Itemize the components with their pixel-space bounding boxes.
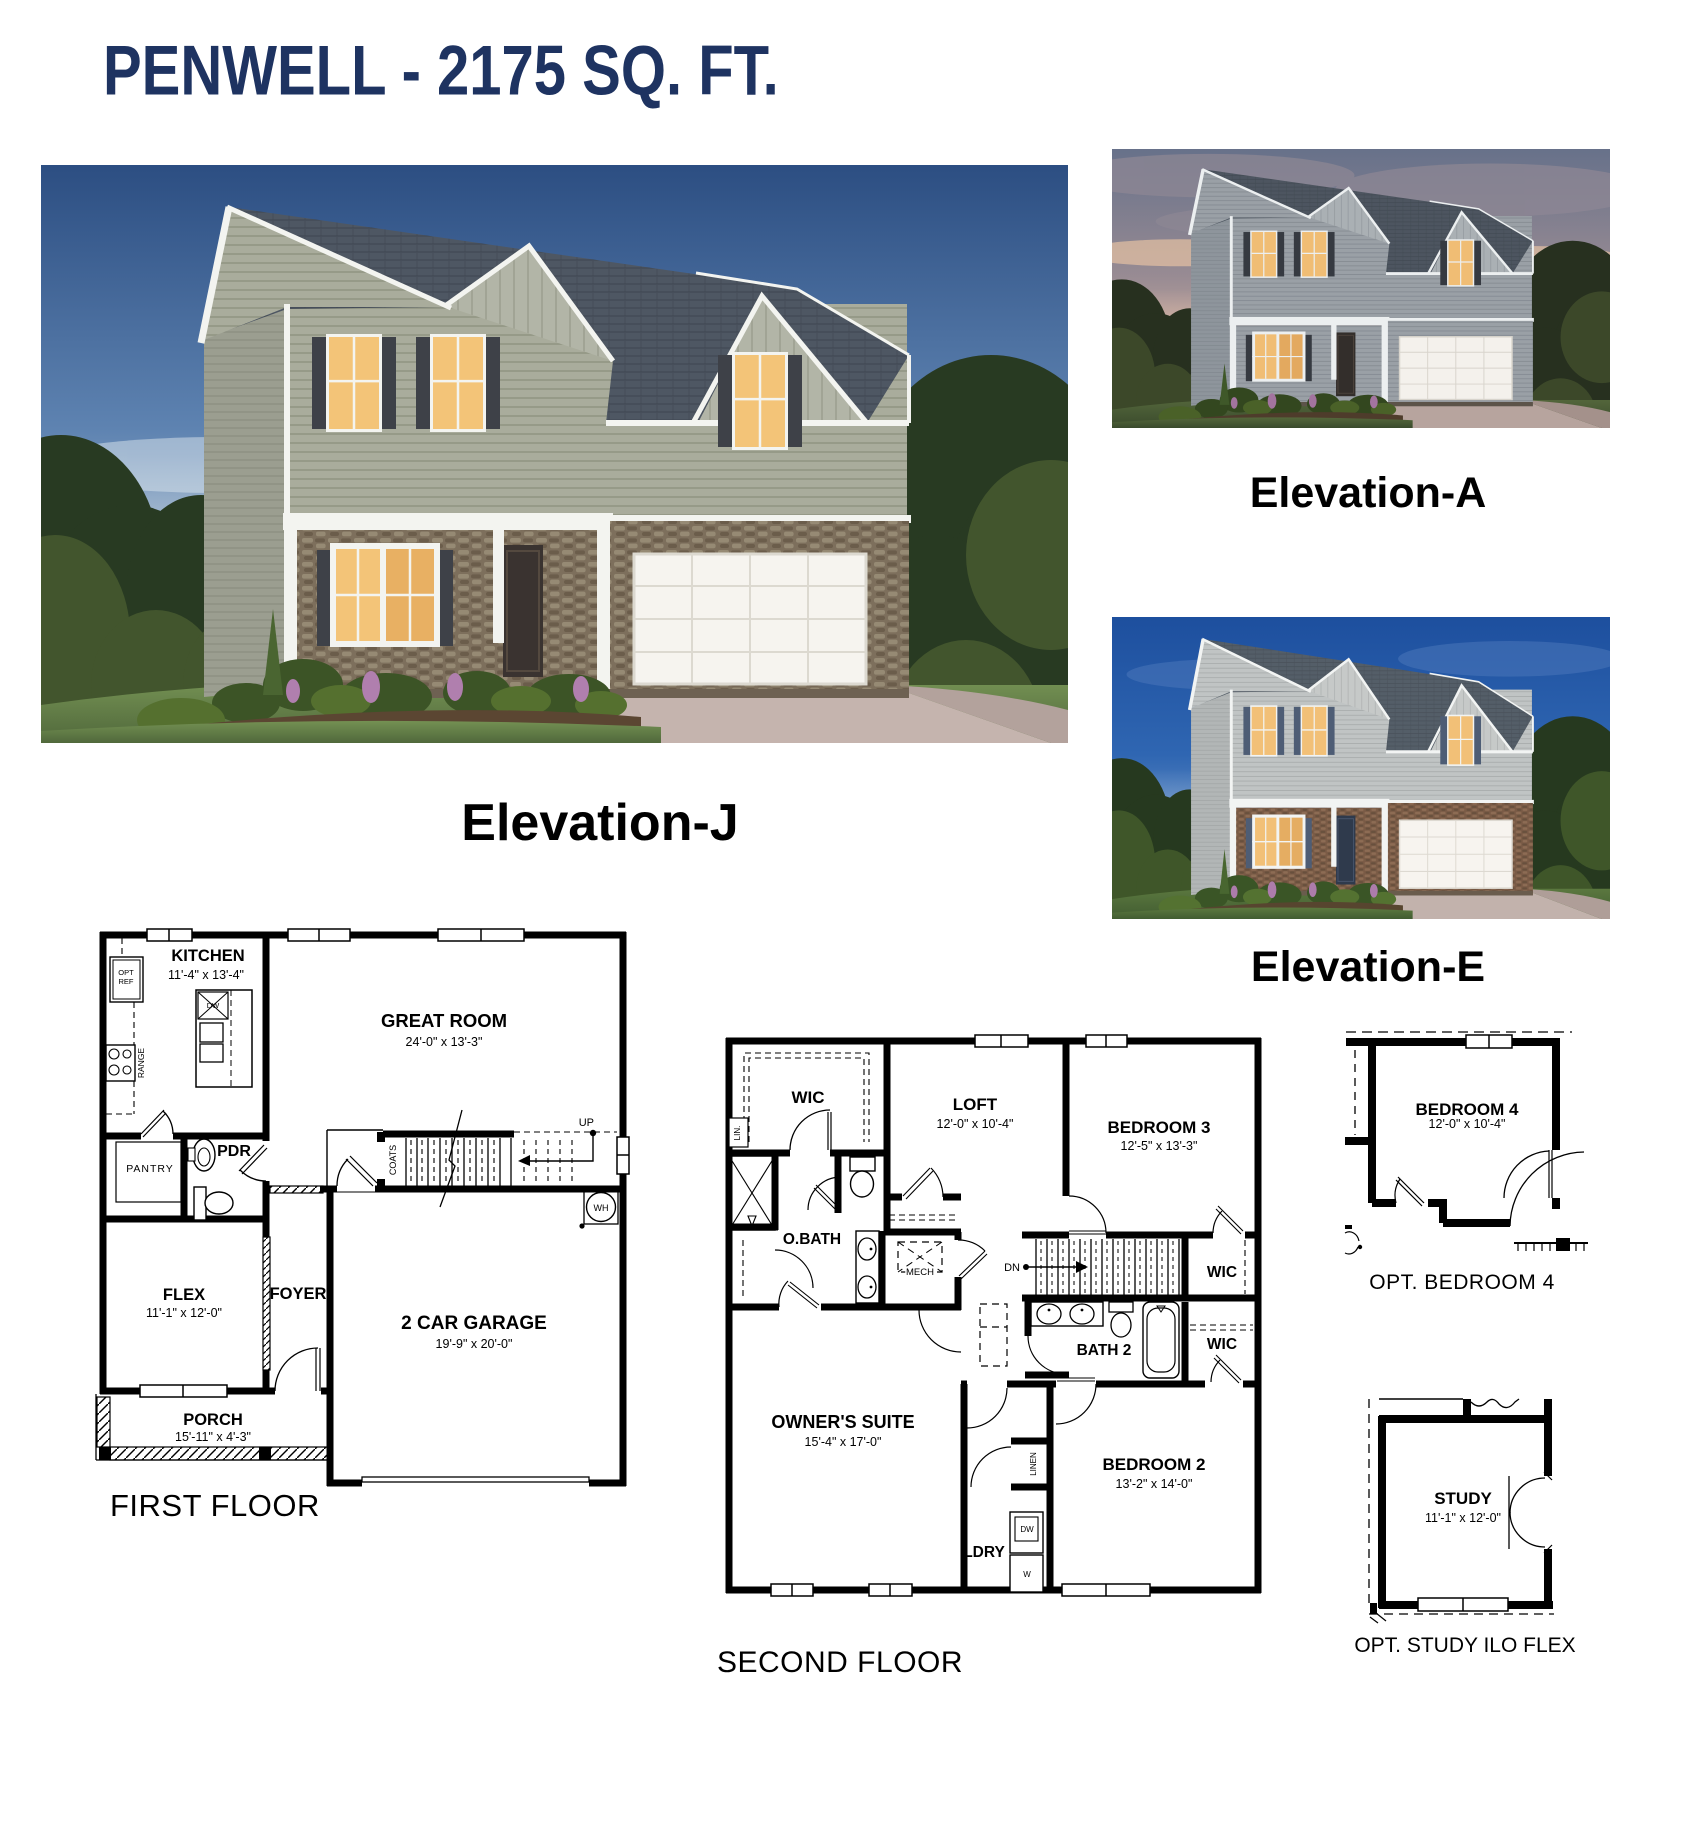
svg-text:19'-9" x 20'-0": 19'-9" x 20'-0": [436, 1337, 513, 1351]
svg-text:COATS: COATS: [388, 1145, 398, 1175]
svg-text:MECH: MECH: [906, 1267, 934, 1278]
svg-text:UP: UP: [579, 1117, 594, 1129]
svg-text:REF: REF: [119, 977, 134, 986]
svg-text:DW: DW: [207, 1001, 220, 1010]
svg-text:12'-0" x 10'-4": 12'-0" x 10'-4": [937, 1117, 1014, 1131]
svg-text:PANTRY: PANTRY: [126, 1163, 174, 1175]
svg-text:PDR: PDR: [217, 1143, 251, 1160]
svg-text:WIC: WIC: [1207, 1264, 1237, 1281]
svg-text:2 CAR GARAGE: 2 CAR GARAGE: [401, 1313, 547, 1334]
svg-text:24'-0" x 13'-3": 24'-0" x 13'-3": [406, 1035, 483, 1049]
svg-text:RANGE: RANGE: [136, 1048, 146, 1079]
svg-text:13'-2" x 14'-0": 13'-2" x 14'-0": [1116, 1477, 1193, 1491]
svg-text:11'-1" x 12'-0": 11'-1" x 12'-0": [146, 1306, 222, 1320]
svg-text:15'-4" x 17'-0": 15'-4" x 17'-0": [805, 1435, 882, 1449]
svg-text:OPT: OPT: [118, 968, 134, 977]
svg-text:OWNER'S SUITE: OWNER'S SUITE: [771, 1412, 914, 1432]
svg-text:KITCHEN: KITCHEN: [171, 947, 244, 965]
svg-text:LDRY: LDRY: [963, 1544, 1005, 1561]
svg-text:WIC: WIC: [791, 1088, 824, 1107]
svg-text:FOYER: FOYER: [270, 1285, 327, 1303]
svg-text:LINEN: LINEN: [1029, 1452, 1038, 1476]
svg-text:11'-4" x 13'-4": 11'-4" x 13'-4": [168, 968, 244, 982]
svg-text:W: W: [1023, 1570, 1031, 1579]
svg-text:LOFT: LOFT: [953, 1095, 998, 1114]
svg-text:WIC: WIC: [1207, 1336, 1237, 1353]
svg-text:GREAT ROOM: GREAT ROOM: [381, 1010, 507, 1031]
svg-text:BEDROOM 2: BEDROOM 2: [1103, 1455, 1206, 1474]
svg-text:BEDROOM 3: BEDROOM 3: [1108, 1118, 1211, 1137]
svg-text:WH: WH: [594, 1203, 609, 1213]
svg-text:DN: DN: [1004, 1262, 1020, 1274]
svg-text:FLEX: FLEX: [163, 1286, 205, 1304]
svg-text:LIN.: LIN.: [733, 1126, 742, 1141]
svg-text:15'-11" x 4'-3": 15'-11" x 4'-3": [175, 1430, 251, 1444]
svg-text:O.BATH: O.BATH: [783, 1231, 841, 1248]
svg-text:12'-5" x 13'-3": 12'-5" x 13'-3": [1121, 1139, 1198, 1153]
svg-text:12'-0" x 10'-4": 12'-0" x 10'-4": [1429, 1117, 1506, 1131]
svg-text:PORCH: PORCH: [183, 1411, 243, 1429]
svg-text:STUDY: STUDY: [1434, 1489, 1492, 1508]
svg-text:BATH 2: BATH 2: [1077, 1342, 1132, 1359]
svg-text:DW: DW: [1020, 1525, 1034, 1534]
svg-text:11'-1" x 12'-0": 11'-1" x 12'-0": [1425, 1511, 1501, 1525]
